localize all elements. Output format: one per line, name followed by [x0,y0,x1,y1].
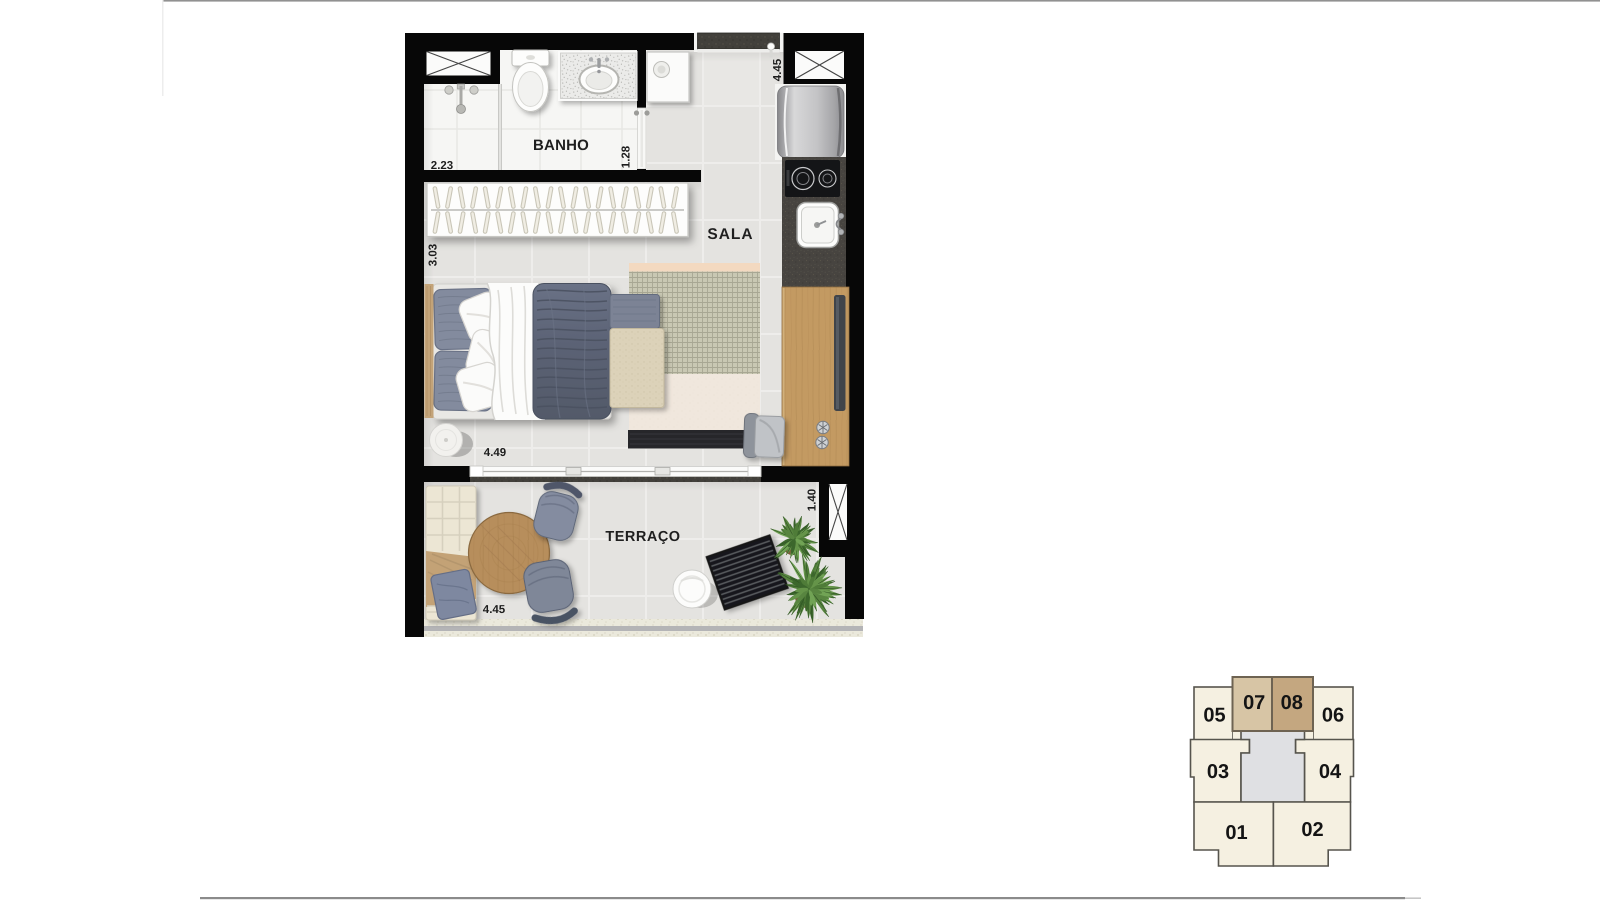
svg-text:2.23: 2.23 [431,160,453,172]
svg-text:03: 03 [1207,761,1229,783]
svg-text:02: 02 [1301,819,1323,841]
svg-text:BANHO: BANHO [533,137,589,154]
svg-text:04: 04 [1319,761,1342,783]
svg-text:08: 08 [1281,692,1303,714]
svg-text:TERRAÇO: TERRAÇO [605,529,680,545]
svg-text:05: 05 [1203,705,1225,727]
svg-text:SALA: SALA [707,226,753,243]
svg-text:4.49: 4.49 [484,447,506,459]
svg-text:4.45: 4.45 [772,58,784,81]
svg-text:07: 07 [1243,692,1265,714]
svg-text:01: 01 [1225,822,1247,844]
svg-text:06: 06 [1322,705,1344,727]
svg-text:1.40: 1.40 [807,489,819,511]
svg-text:4.45: 4.45 [483,604,506,616]
svg-text:3.03: 3.03 [428,244,440,266]
svg-text:1.28: 1.28 [621,145,633,168]
